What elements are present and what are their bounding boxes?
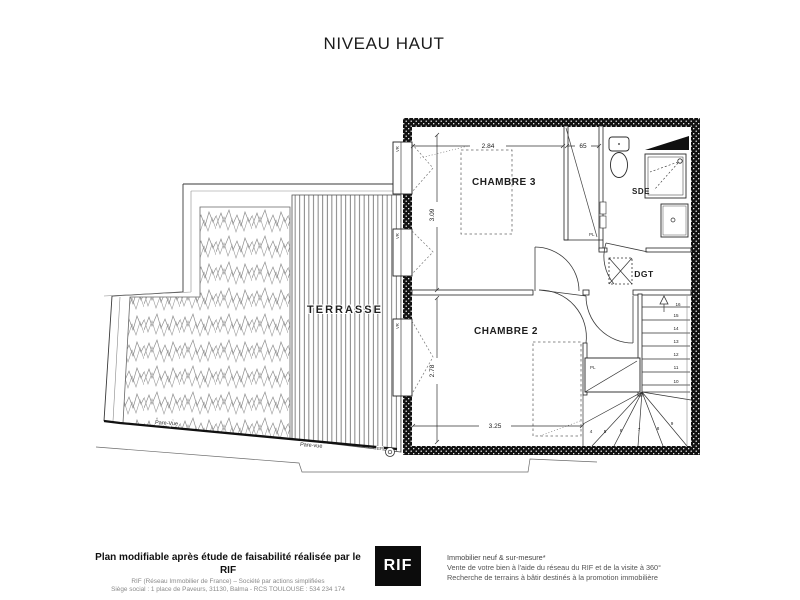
wall-left-seg2 — [403, 194, 412, 229]
wall-left-seg4 — [403, 396, 412, 446]
partition-sde-bottom-a — [599, 248, 607, 252]
dgt-zone — [609, 258, 632, 284]
stair-num-16: 16 — [675, 302, 681, 307]
rif-logo-text: RIF — [384, 557, 413, 575]
wall-left-seg3 — [403, 276, 412, 319]
ep-label: EP — [377, 446, 383, 451]
stair-num-10: 10 — [673, 379, 679, 384]
footer-service-line1: Immobilier neuf & sur-mesure* — [447, 553, 727, 563]
washbasin-faucet — [671, 218, 675, 222]
partition-closet-sde — [599, 126, 603, 250]
room-label-chambre2: CHAMBRE 2 — [474, 326, 538, 337]
stair-num-8: 8 — [657, 426, 660, 431]
doors — [535, 243, 648, 343]
windows: VR VR VR — [393, 142, 433, 396]
footer-services-block: Immobilier neuf & sur-mesure* Vente de v… — [447, 553, 727, 583]
rif-logo: RIF — [375, 546, 421, 586]
window-2-vr-label: VR — [395, 233, 400, 239]
wall-right — [691, 118, 700, 455]
partition-sde-bottom-b — [646, 248, 691, 252]
bed3-leader — [420, 146, 468, 158]
terrace-decking-area — [292, 195, 401, 452]
footer-address-line: Siège social : 1 place de Paveurs, 31130… — [95, 586, 361, 594]
partition-ch3-ch2-b — [583, 290, 589, 295]
shower-drain — [678, 159, 682, 163]
partition-closet-left — [564, 126, 568, 240]
window-2: VR — [393, 229, 433, 276]
toilet-bowl — [611, 153, 628, 178]
closet-lower-label: PL — [590, 365, 596, 370]
door-stairs — [586, 296, 633, 343]
pare-vue-label-right: Pare-vue — [300, 442, 323, 450]
footer-plan-note: Plan modifiable après étude de faisabili… — [95, 552, 361, 577]
room-label-sde: SDE — [632, 187, 650, 196]
toilet-button — [618, 143, 620, 145]
stair-num-5: 5 — [604, 429, 607, 434]
sde-shelf — [645, 136, 689, 150]
bed-chambre2 — [533, 342, 581, 436]
stair-treads — [642, 307, 690, 392]
interior-partitions — [412, 126, 691, 396]
stair-winders — [583, 392, 691, 446]
building-walls — [403, 118, 700, 455]
dim-closet-width: 65 — [579, 143, 587, 150]
window-3-vr-label: VR — [395, 323, 400, 329]
dim-ch2-depth: 2.78 — [429, 364, 436, 377]
shower-tray — [645, 154, 686, 198]
dim-ch2-width: 3.25 — [489, 423, 502, 430]
terrace-planted-area — [123, 207, 290, 439]
window-1: VR — [393, 142, 433, 194]
closet-upper-label: PL — [589, 232, 595, 237]
dgt-trap-cross — [609, 258, 632, 284]
stair-num-13: 13 — [673, 339, 679, 344]
stair-num-9: 9 — [671, 421, 674, 426]
sde-door-jamb-b — [600, 216, 606, 228]
footer-service-line2: Vente de votre bien à l'aide du réseau d… — [447, 563, 727, 573]
stair-num-6: 6 — [620, 428, 623, 433]
dim-ch3-width: 2.84 — [482, 143, 495, 150]
stair-num-15: 15 — [673, 313, 679, 318]
window-3: VR — [393, 319, 433, 396]
footer-legal-block: Plan modifiable après étude de faisabili… — [95, 552, 361, 594]
shower-slope-lines — [650, 162, 678, 190]
stair-num-4: 4 — [590, 429, 593, 434]
partition-ch3-ch2-a — [412, 290, 533, 295]
dim-ch3-depth: 3.09 — [429, 208, 436, 221]
ep-drain-icon — [386, 448, 395, 457]
shower-tray-inner — [648, 157, 683, 195]
sde-door-jamb-a — [600, 202, 606, 214]
door-chambre3 — [535, 247, 579, 291]
bed-chambre3 — [461, 150, 512, 234]
footer-company-line: RIF (Réseau Immobilier de France) – Soci… — [95, 578, 361, 586]
stair-num-12: 12 — [673, 352, 679, 357]
stair-num-11: 11 — [674, 365, 679, 370]
stair-up-arrow-icon — [660, 296, 668, 304]
wall-top — [403, 118, 700, 127]
room-label-chambre3: CHAMBRE 3 — [472, 177, 536, 188]
floor-plan-drawing: EP Pare-Vue Pare-vue TERRASSE VR VR — [0, 0, 800, 600]
footer-service-line3: Recherche de terrains à bâtir destinés à… — [447, 573, 727, 583]
wall-bottom — [403, 446, 700, 455]
wall-left-seg1 — [403, 118, 412, 142]
washbasin-cabinet-inner — [663, 206, 686, 235]
closet-lower: PL — [585, 358, 640, 392]
bed2-leader — [540, 421, 580, 436]
window-1-vr-label: VR — [395, 146, 400, 152]
room-label-terrasse: TERRASSE — [307, 304, 383, 316]
stair-num-7: 7 — [638, 427, 641, 432]
washbasin-cabinet — [661, 204, 688, 237]
door-chambre2 — [539, 290, 586, 343]
floor-plan-page: { "title": "NIVEAU HAUT", "plan": { "roo… — [0, 0, 800, 600]
room-label-dgt: DGT — [634, 269, 654, 279]
stair-num-14: 14 — [673, 326, 679, 331]
